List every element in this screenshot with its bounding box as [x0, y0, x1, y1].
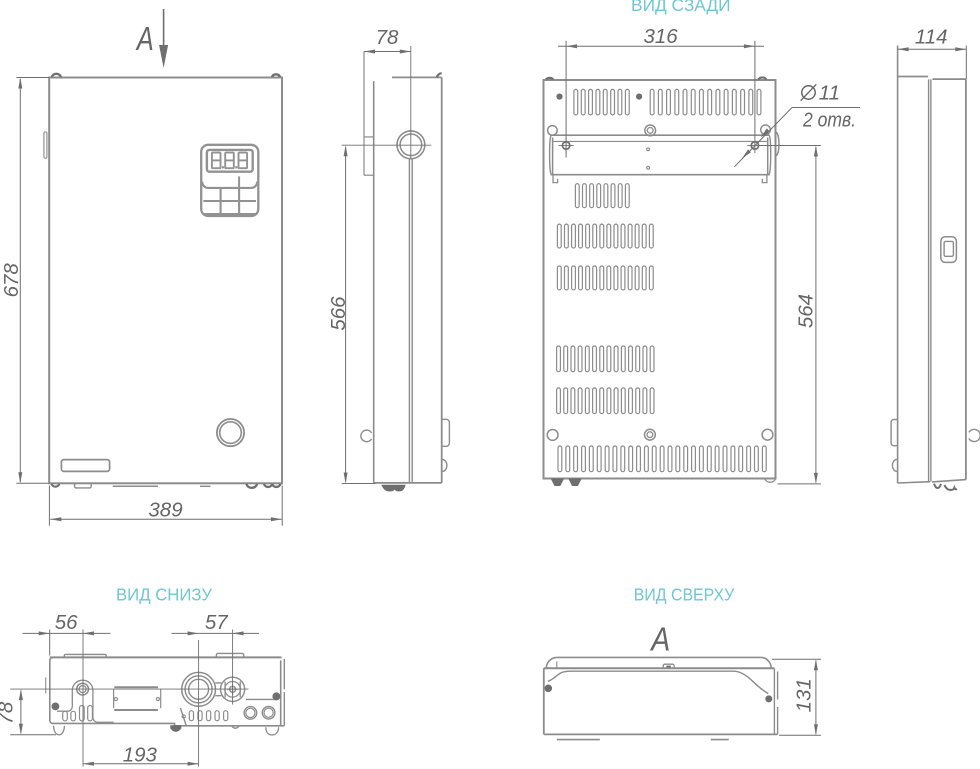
svg-text:566: 566 [327, 296, 350, 331]
svg-text:ВИД СВЕРХУ: ВИД СВЕРХУ [634, 584, 735, 604]
svg-text:A: A [135, 21, 154, 58]
svg-text:11: 11 [819, 82, 840, 105]
svg-text:678: 678 [0, 263, 23, 298]
svg-text:A: A [650, 622, 671, 659]
svg-text:56: 56 [55, 611, 78, 634]
svg-text:389: 389 [148, 498, 182, 521]
svg-text:57: 57 [205, 611, 229, 634]
svg-text:114: 114 [915, 25, 948, 48]
svg-text:316: 316 [643, 25, 678, 48]
svg-text:ВИД СЗАДИ: ВИД СЗАДИ [631, 0, 731, 15]
svg-text:131: 131 [792, 678, 815, 712]
svg-text:ВИД СНИЗУ: ВИД СНИЗУ [116, 584, 213, 604]
svg-text:564: 564 [795, 294, 818, 328]
svg-text:78: 78 [0, 701, 18, 724]
svg-text:78: 78 [376, 26, 399, 49]
svg-text:2 отв.: 2 отв. [802, 108, 856, 131]
svg-text:193: 193 [123, 743, 158, 766]
